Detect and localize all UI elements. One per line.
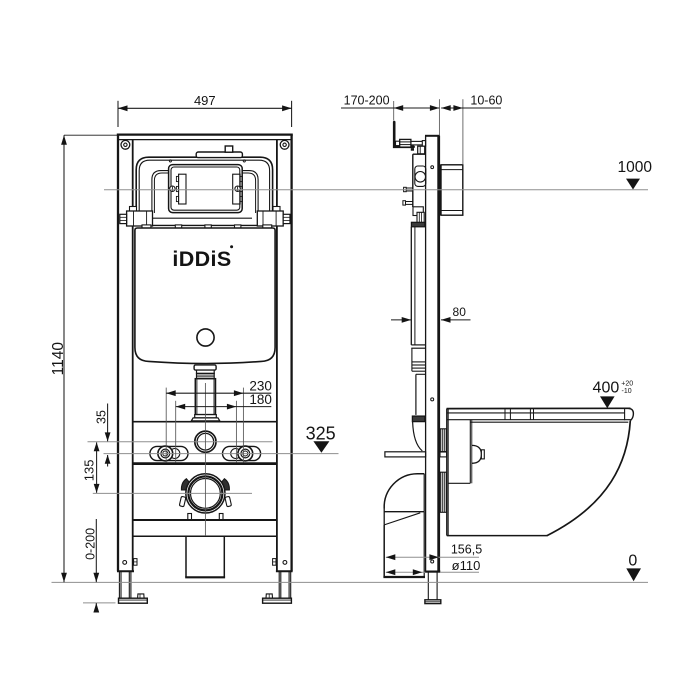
svg-text:180: 180 [249, 392, 272, 407]
svg-text:10-60: 10-60 [470, 93, 502, 107]
svg-text:400: 400 [593, 379, 620, 396]
svg-text:497: 497 [194, 93, 216, 108]
svg-text:1140: 1140 [50, 342, 67, 376]
svg-text:1000: 1000 [618, 159, 653, 176]
svg-text:iDDiS: iDDiS [172, 247, 231, 271]
svg-text:0: 0 [628, 552, 637, 569]
svg-text:+20: +20 [621, 380, 633, 387]
svg-text:170-200: 170-200 [344, 93, 390, 107]
svg-text:ø110: ø110 [452, 558, 481, 573]
svg-text:156,5: 156,5 [451, 542, 482, 556]
svg-text:-10: -10 [622, 388, 632, 395]
svg-text:325: 325 [306, 424, 336, 444]
svg-text:135: 135 [81, 460, 96, 482]
svg-text:0-200: 0-200 [84, 528, 98, 560]
svg-text:35: 35 [95, 410, 109, 424]
svg-text:80: 80 [453, 305, 467, 319]
